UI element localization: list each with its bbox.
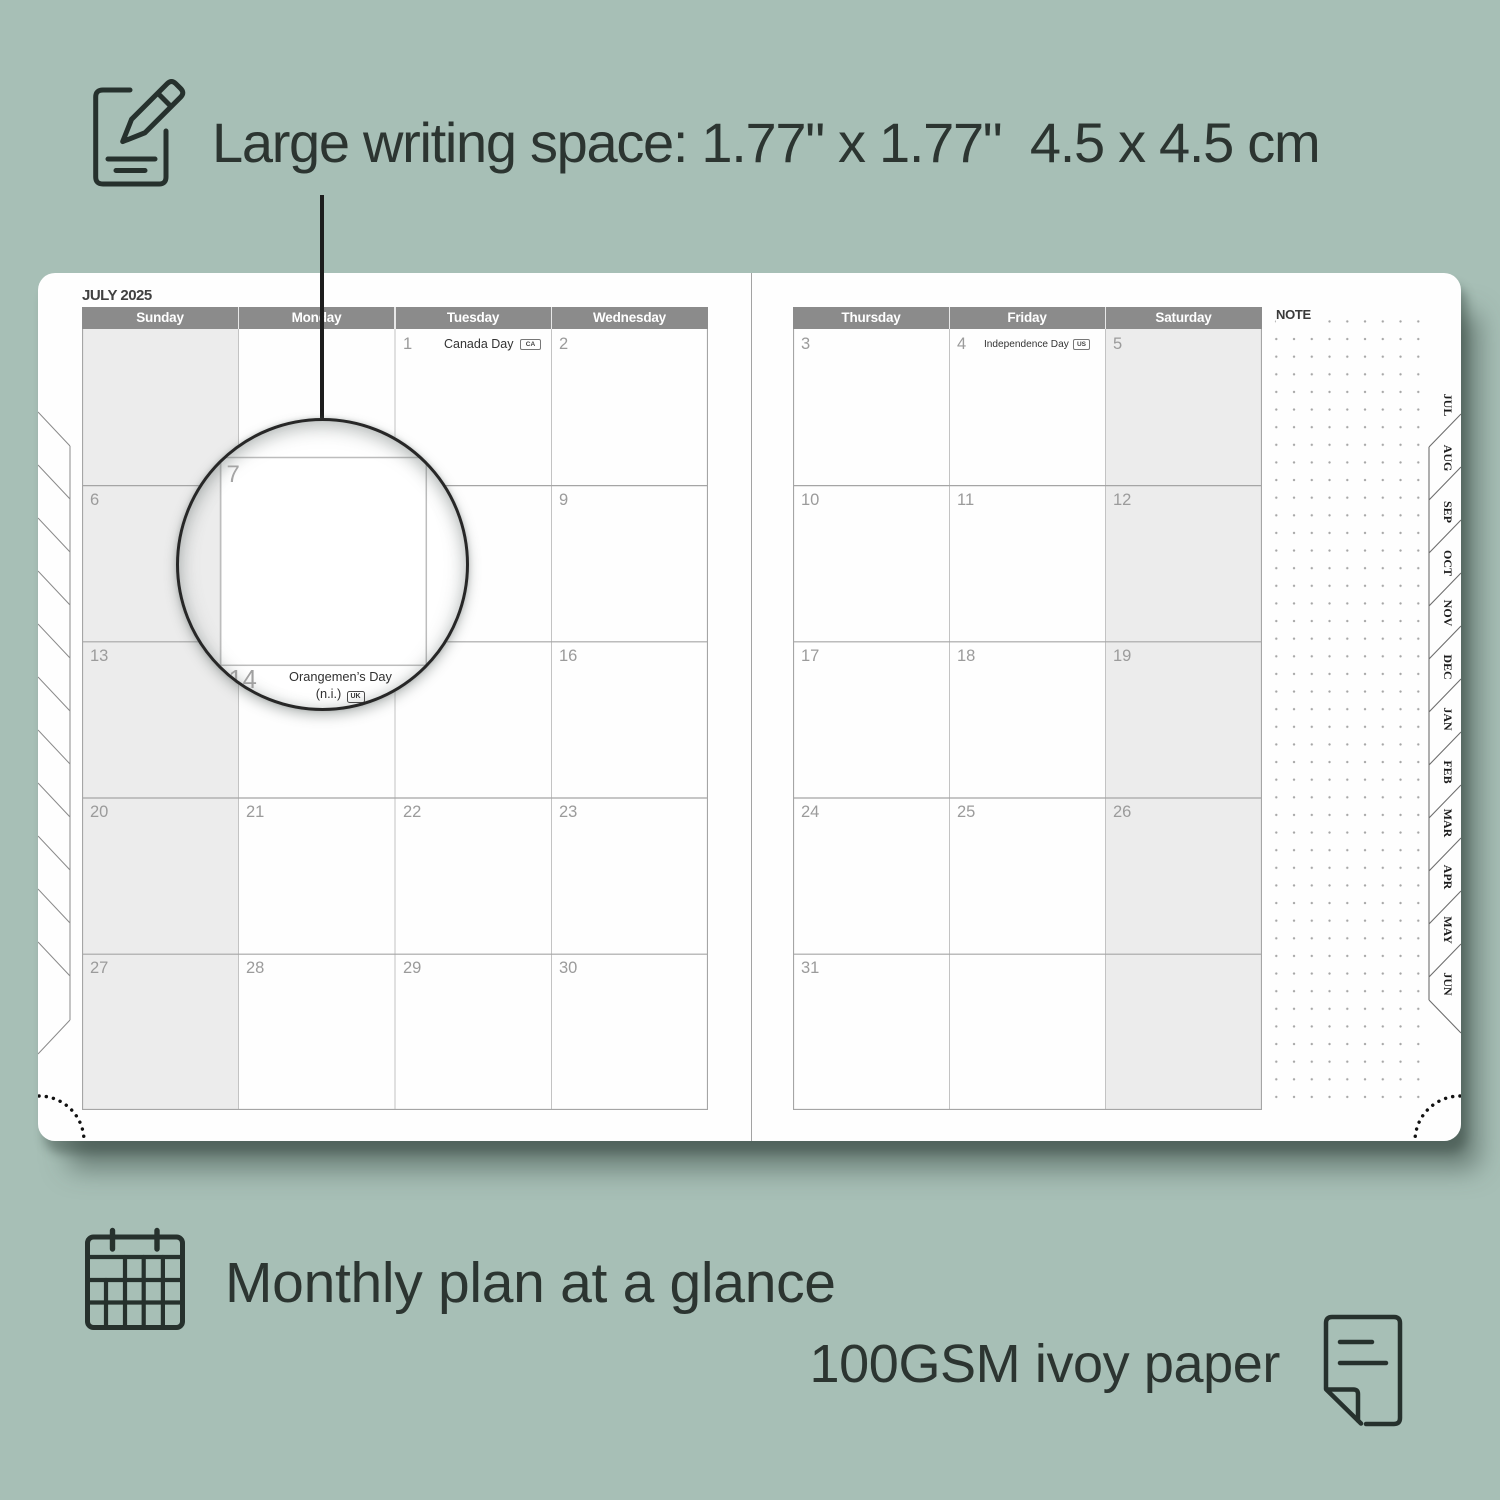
svg-text:JUL: JUL [1441,394,1455,417]
svg-text:JAN: JAN [1441,707,1455,731]
svg-text:OCT: OCT [1441,550,1455,576]
svg-text:SEP: SEP [1441,501,1455,523]
svg-text:NOV: NOV [1441,600,1455,627]
svg-text:MAY: MAY [1441,916,1455,944]
svg-text:MAR: MAR [1441,809,1455,838]
svg-text:DEC: DEC [1441,654,1455,679]
svg-text:FEB: FEB [1441,760,1455,783]
svg-text:APR: APR [1441,865,1455,890]
svg-text:AUG: AUG [1441,445,1455,472]
svg-text:JUN: JUN [1441,972,1455,996]
